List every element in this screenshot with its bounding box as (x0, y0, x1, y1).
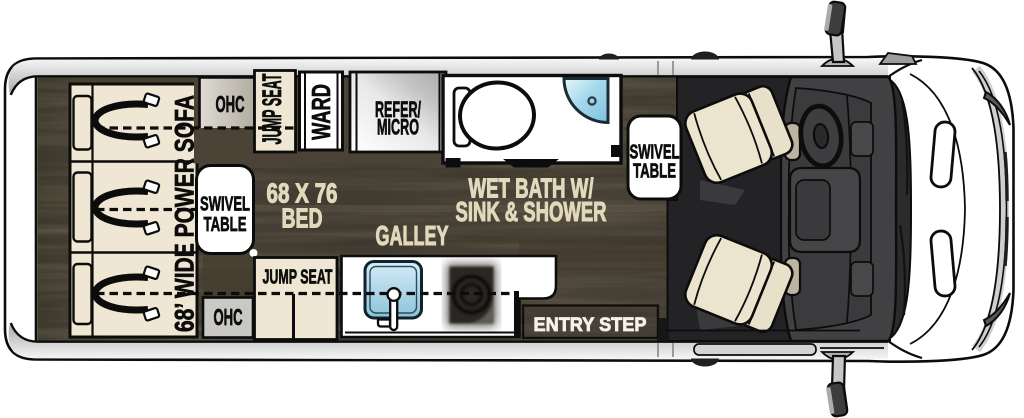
svg-text:MICRO: MICRO (377, 115, 419, 140)
svg-text:BED: BED (282, 203, 323, 234)
svg-text:OHC: OHC (216, 91, 245, 117)
svg-text:JUMP SEAT: JUMP SEAT (263, 267, 333, 289)
svg-text:TABLE: TABLE (633, 161, 676, 183)
svg-text:OHC: OHC (214, 304, 243, 330)
svg-text:TABLE: TABLE (204, 214, 247, 236)
svg-text:SINK & SHOWER: SINK & SHOWER (456, 196, 607, 227)
svg-text:SWIVEL: SWIVEL (200, 194, 250, 216)
svg-text:GALLEY: GALLEY (376, 220, 449, 251)
svg-text:JUMP SEAT: JUMP SEAT (257, 74, 287, 145)
svg-text:WARD: WARD (308, 84, 336, 140)
svg-text:ENTRY STEP: ENTRY STEP (534, 314, 647, 336)
